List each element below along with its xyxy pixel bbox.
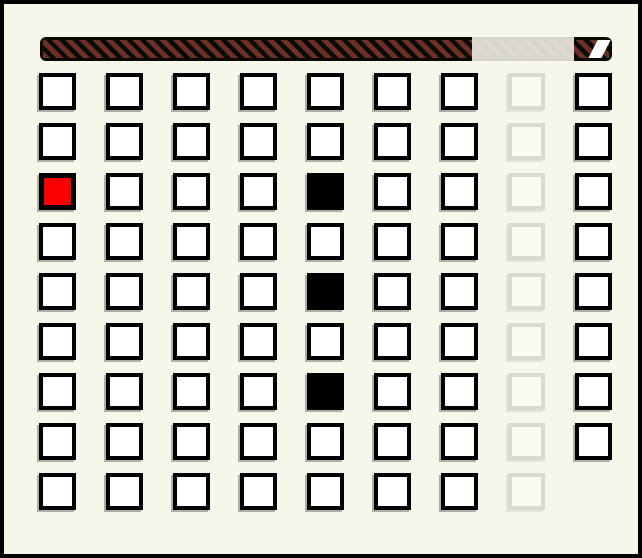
grid-cell-r5c5[interactable] — [307, 273, 344, 310]
grid-cell-r3c1[interactable] — [39, 173, 76, 210]
grid-cell-r3c4[interactable] — [240, 173, 277, 210]
grid-cell-r1c1[interactable] — [39, 73, 76, 110]
grid-cell-r7c8 — [508, 373, 545, 410]
grid-cell-r8c7[interactable] — [441, 423, 478, 460]
grid-cell-r9c3[interactable] — [173, 473, 210, 510]
grid-cell-r2c5[interactable] — [307, 123, 344, 160]
grid-cell-r2c6[interactable] — [374, 123, 411, 160]
grid-cell-r6c3[interactable] — [173, 323, 210, 360]
grid-cell-r5c2[interactable] — [106, 273, 143, 310]
grid-cell-r2c4[interactable] — [240, 123, 277, 160]
grid-cell-r1c9[interactable] — [575, 73, 612, 110]
grid-cell-r4c6[interactable] — [374, 223, 411, 260]
grid-cell-r9c8 — [508, 473, 545, 510]
grid-cell-r1c4[interactable] — [240, 73, 277, 110]
timer-highlight-overlay — [472, 37, 574, 61]
grid-cell-r4c2[interactable] — [106, 223, 143, 260]
grid-cell-r2c3[interactable] — [173, 123, 210, 160]
grid-cell-r8c8 — [508, 423, 545, 460]
grid-cell-r8c1[interactable] — [39, 423, 76, 460]
grid-cell-r6c8 — [508, 323, 545, 360]
grid-cell-r7c2[interactable] — [106, 373, 143, 410]
grid-cell-r2c1[interactable] — [39, 123, 76, 160]
grid-cell-r5c1[interactable] — [39, 273, 76, 310]
grid-cell-r7c1[interactable] — [39, 373, 76, 410]
grid-cell-r8c3[interactable] — [173, 423, 210, 460]
grid-cell-r5c8 — [508, 273, 545, 310]
grid-cell-r4c7[interactable] — [441, 223, 478, 260]
grid-cell-r7c7[interactable] — [441, 373, 478, 410]
grid-cell-r3c5[interactable] — [307, 173, 344, 210]
game-window — [0, 0, 642, 558]
grid-cell-r7c9[interactable] — [575, 373, 612, 410]
grid-cell-r9c2[interactable] — [106, 473, 143, 510]
grid-cell-r7c5[interactable] — [307, 373, 344, 410]
grid-cell-r7c4[interactable] — [240, 373, 277, 410]
grid-cell-r6c4[interactable] — [240, 323, 277, 360]
grid-cell-r6c9[interactable] — [575, 323, 612, 360]
grid-cell-r1c6[interactable] — [374, 73, 411, 110]
grid-cell-r7c6[interactable] — [374, 373, 411, 410]
grid-cell-r1c8 — [508, 73, 545, 110]
grid-cell-r8c9[interactable] — [575, 423, 612, 460]
grid-cell-r1c2[interactable] — [106, 73, 143, 110]
grid-cell-r5c7[interactable] — [441, 273, 478, 310]
grid-cell-r6c1[interactable] — [39, 323, 76, 360]
game-board — [39, 73, 612, 510]
grid-cell-r1c5[interactable] — [307, 73, 344, 110]
grid-cell-r8c6[interactable] — [374, 423, 411, 460]
grid-cell-r3c3[interactable] — [173, 173, 210, 210]
grid-cell-r1c7[interactable] — [441, 73, 478, 110]
grid-cell-r4c4[interactable] — [240, 223, 277, 260]
grid-cell-r1c3[interactable] — [173, 73, 210, 110]
grid-cell-r7c3[interactable] — [173, 373, 210, 410]
grid-cell-r4c3[interactable] — [173, 223, 210, 260]
grid-cell-r5c4[interactable] — [240, 273, 277, 310]
grid-cell-r8c4[interactable] — [240, 423, 277, 460]
grid-cell-r9c6[interactable] — [374, 473, 411, 510]
grid-cell-r8c5[interactable] — [307, 423, 344, 460]
grid-cell-r3c6[interactable] — [374, 173, 411, 210]
grid-cell-r6c5[interactable] — [307, 323, 344, 360]
grid-cell-r2c2[interactable] — [106, 123, 143, 160]
grid-cell-r4c1[interactable] — [39, 223, 76, 260]
grid-cell-r9c7[interactable] — [441, 473, 478, 510]
grid-cell-r9c1[interactable] — [39, 473, 76, 510]
grid-cell-r2c8 — [508, 123, 545, 160]
grid-cell-r9c4[interactable] — [240, 473, 277, 510]
grid-cell-r6c6[interactable] — [374, 323, 411, 360]
grid-cell-r9c5[interactable] — [307, 473, 344, 510]
grid-cell-r8c2[interactable] — [106, 423, 143, 460]
grid-cell-r4c8 — [508, 223, 545, 260]
grid-cell-r2c9[interactable] — [575, 123, 612, 160]
grid-cell-r5c3[interactable] — [173, 273, 210, 310]
grid-cell-r6c7[interactable] — [441, 323, 478, 360]
grid-cell-r6c2[interactable] — [106, 323, 143, 360]
grid-cell-r4c9[interactable] — [575, 223, 612, 260]
grid-cell-r5c6[interactable] — [374, 273, 411, 310]
grid-cell-r3c7[interactable] — [441, 173, 478, 210]
grid-cell-r5c9[interactable] — [575, 273, 612, 310]
grid-cell-r2c7[interactable] — [441, 123, 478, 160]
grid-cell-r3c9[interactable] — [575, 173, 612, 210]
grid-cell-r4c5[interactable] — [307, 223, 344, 260]
timer-progress-bar — [40, 37, 612, 61]
grid-cell-r3c2[interactable] — [106, 173, 143, 210]
grid-cell-r3c8 — [508, 173, 545, 210]
